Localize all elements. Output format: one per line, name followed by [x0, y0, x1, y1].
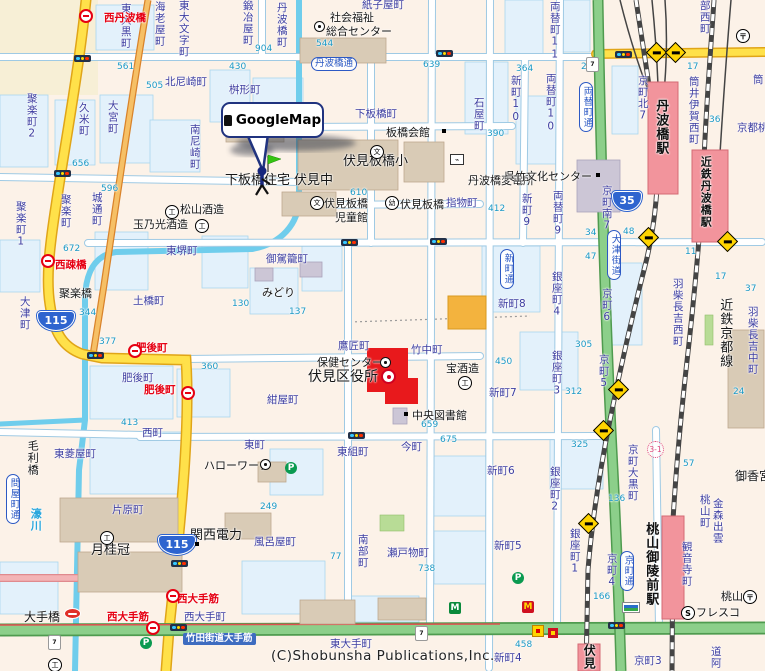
- googlemap-balloon[interactable]: GoogleMap: [221, 102, 324, 138]
- copyright-text: (C)Shobunsha Publications,Inc.: [271, 650, 495, 664]
- balloon-label: GoogleMap: [236, 112, 321, 128]
- balloon-pin-icon: [224, 115, 232, 126]
- map-canvas: 東大黒町海老屋町東大文字町鍛冶屋町紙子屋町北尼崎町桝形町南尼崎町丹波橋町久米町大…: [0, 0, 765, 671]
- marker-overlay: [0, 0, 765, 671]
